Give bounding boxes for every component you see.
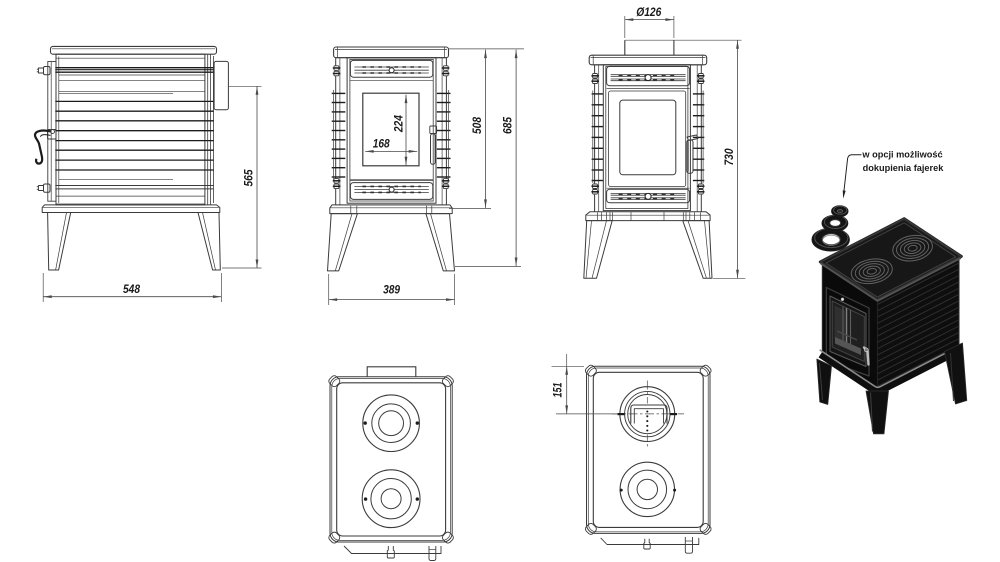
svg-text:730: 730 [722, 148, 736, 165]
svg-text:565: 565 [241, 169, 255, 186]
svg-text:224: 224 [392, 115, 406, 133]
svg-text:389: 389 [383, 283, 400, 297]
svg-text:dokupienia fajerek: dokupienia fajerek [863, 163, 945, 173]
svg-text:Ø126: Ø126 [636, 5, 661, 19]
svg-text:685: 685 [500, 117, 514, 134]
svg-text:168: 168 [373, 136, 390, 150]
svg-text:508: 508 [470, 117, 484, 134]
svg-text:w opcji możliwość: w opcji możliwość [861, 150, 942, 160]
svg-text:151: 151 [551, 382, 565, 397]
svg-text:548: 548 [123, 282, 140, 296]
